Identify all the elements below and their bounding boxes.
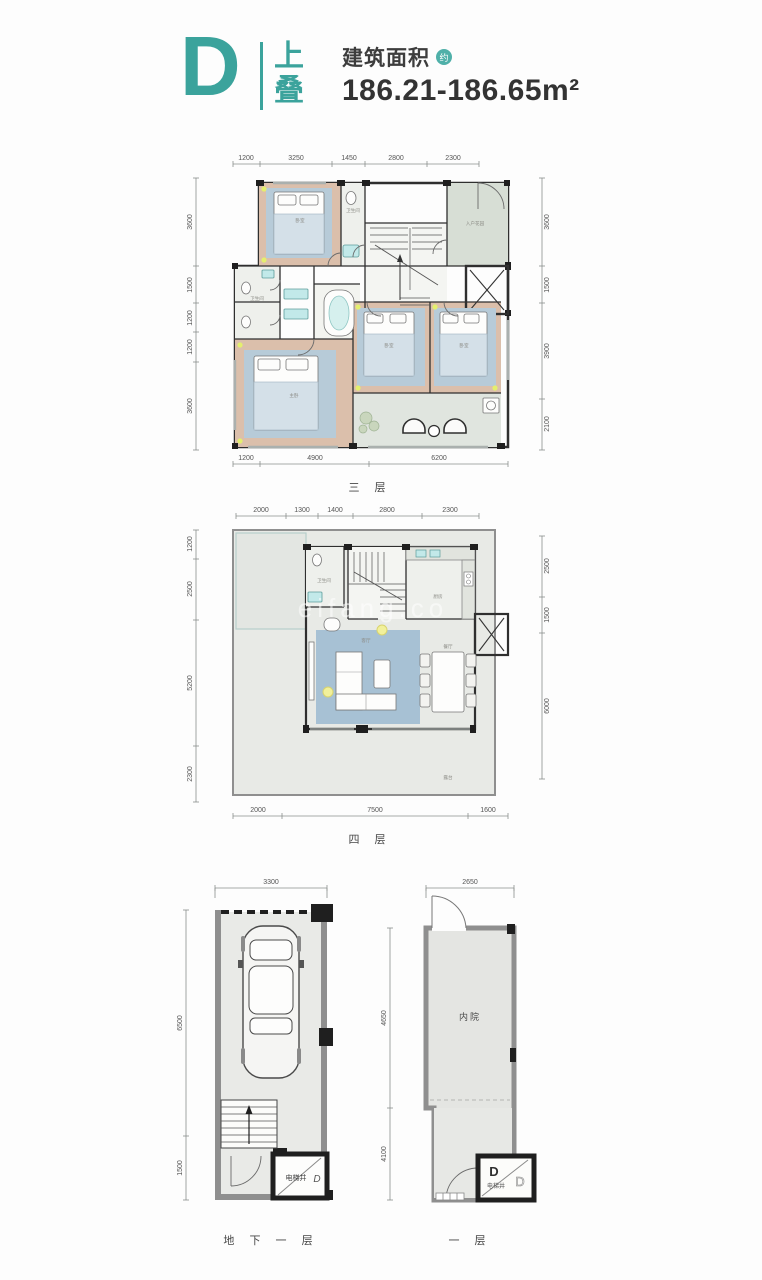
stairs-icon [221,1100,277,1148]
svg-text:3300: 3300 [263,879,279,886]
svg-text:4100: 4100 [381,1146,388,1162]
svg-text:4650: 4650 [381,1010,388,1026]
svg-text:卧室: 卧室 [295,217,305,224]
balcony [353,393,501,447]
svg-text:3600: 3600 [187,214,194,230]
svg-text:电梯井: 电梯井 [487,1182,505,1190]
svg-text:1200: 1200 [187,339,194,355]
svg-text:1500: 1500 [544,277,551,293]
svg-text:1200: 1200 [187,310,194,326]
glass-terrace [236,533,306,629]
svg-text:2300: 2300 [187,766,194,782]
svg-text:2650: 2650 [462,879,478,886]
svg-text:1500: 1500 [187,277,194,293]
area-label: 建筑面积 [342,42,430,72]
svg-text:2000: 2000 [253,507,269,514]
svg-text:2100: 2100 [544,416,551,432]
area-value: 186.21-186.65m² [342,74,580,108]
elevator-shaft: D 电梯井 D [478,1156,534,1200]
bed-icon [266,188,332,258]
svg-text:2800: 2800 [379,507,395,514]
floorplan-page: D 上 叠 建筑面积 约 186.21-186.65m² [0,0,762,1280]
svg-text:6200: 6200 [431,455,447,462]
svg-text:卫生间: 卫生间 [250,295,264,302]
svg-text:厨房: 厨房 [433,593,443,600]
svg-text:2300: 2300 [445,155,461,162]
svg-text:卫生间: 卫生间 [346,207,360,214]
floor1-plan: 2650 4650 4100 [370,868,564,1260]
coffee-table-icon [374,660,390,688]
svg-text:2000: 2000 [250,807,266,814]
approx-badge: 约 [436,49,452,65]
svg-text:1200: 1200 [238,455,254,462]
basement-caption: 地 下 一 层 [223,1234,318,1247]
svg-text:1500: 1500 [544,607,551,623]
svg-text:2500: 2500 [544,558,551,574]
svg-text:1200: 1200 [238,155,254,162]
svg-text:入户花园: 入户花园 [466,220,485,227]
svg-text:2500: 2500 [187,581,194,597]
bathtub-icon [324,290,354,336]
svg-text:7500: 7500 [367,807,383,814]
svg-text:D: D [489,1164,498,1179]
stack-type-label: 上 叠 [274,40,304,108]
floor4-plan: 2000 1300 1400 2800 2300 2000 7500 1600 … [178,502,562,864]
svg-text:卫生间: 卫生间 [317,577,331,584]
tv-console-icon [309,642,314,700]
svg-text:1400: 1400 [327,507,343,514]
svg-text:1200: 1200 [187,536,194,552]
svg-text:3250: 3250 [288,155,304,162]
svg-text:卧室: 卧室 [459,342,469,349]
svg-text:1600: 1600 [480,807,496,814]
basement-plan: 3300 6500 1500 [170,868,374,1260]
svg-text:露台: 露台 [443,774,453,781]
elevator-shaft: 电梯井 D [273,1154,327,1198]
floor3-plan: 1200 3250 1450 2800 2300 1200 4900 6200 … [178,150,562,500]
svg-text:2300: 2300 [442,507,458,514]
svg-text:4900: 4900 [307,455,323,462]
floor1-caption: 一 层 [448,1234,491,1247]
svg-text:1450: 1450 [341,155,357,162]
floor4-caption: 四 层 [348,833,391,846]
area-block: 建筑面积 约 186.21-186.65m² [342,42,580,108]
svg-text:6000: 6000 [544,698,551,714]
washer-icon [483,398,499,413]
svg-text:D: D [515,1174,524,1189]
svg-text:3600: 3600 [544,214,551,230]
svg-text:卧室: 卧室 [384,342,394,349]
svg-text:3900: 3900 [544,343,551,359]
floor1-entry-door [432,896,466,928]
svg-text:3600: 3600 [187,398,194,414]
svg-text:D: D [313,1174,320,1185]
stack-char-bottom: 叠 [274,74,304,108]
svg-text:1300: 1300 [294,507,310,514]
svg-text:1500: 1500 [177,1160,184,1176]
svg-text:6500: 6500 [177,1015,184,1031]
floor3-caption: 三 层 [348,481,391,494]
dining-table-icon [420,652,476,712]
header-divider [260,42,263,110]
car-icon [238,926,304,1078]
stairwell [365,223,447,314]
unit-letter: D [180,24,241,108]
svg-text:客厅: 客厅 [361,637,371,644]
floor1-window [436,1193,464,1200]
stack-char-top: 上 [274,40,304,74]
svg-text:5200: 5200 [187,675,194,691]
watermark: eifang.co [298,593,449,623]
svg-text:餐厅: 餐厅 [443,643,453,650]
svg-text:主卧: 主卧 [289,392,299,399]
svg-text:2800: 2800 [388,155,404,162]
courtyard-label: 内院 [459,1011,481,1022]
svg-text:电梯井: 电梯井 [286,1173,307,1182]
